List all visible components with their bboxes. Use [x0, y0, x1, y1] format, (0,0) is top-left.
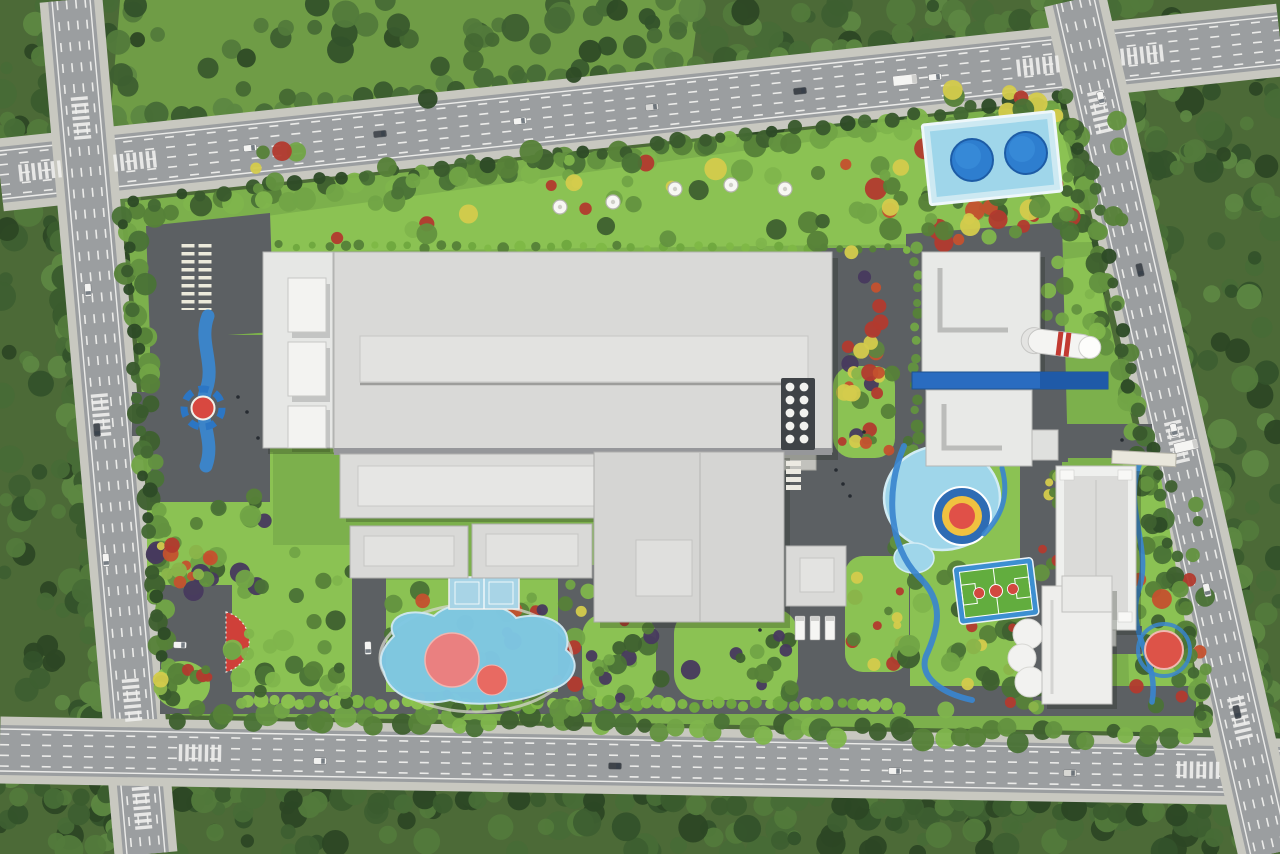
forest-east: [1202, 82, 1221, 101]
forest-west: [28, 371, 54, 397]
building-hedge: [726, 242, 734, 250]
south-hedge: [374, 699, 387, 712]
south-belt: [1007, 731, 1029, 753]
forest-south: [206, 824, 223, 841]
field-edge-trees: [508, 65, 525, 82]
central-garden-trees: [565, 700, 581, 716]
north-belt-dark: [127, 196, 139, 208]
southwest-garden-trees: [315, 573, 331, 589]
north-belt-dark: [934, 109, 946, 121]
forest-east: [1211, 332, 1230, 351]
south-belt: [854, 718, 870, 734]
hall-east-shrubs: [858, 270, 871, 283]
building-hedge: [580, 242, 587, 249]
lower-hall-skylight: [636, 540, 692, 596]
truck-cab: [912, 75, 918, 83]
south-hedge: [303, 695, 315, 707]
north-garden-trees: [368, 195, 383, 210]
building-hedge: [694, 241, 703, 250]
truck-cab: [796, 616, 804, 621]
south-belt: [452, 719, 467, 734]
car: [513, 117, 527, 125]
west-garden-trees: [211, 500, 227, 516]
utility-east-trees: [1085, 289, 1095, 299]
south-hedge: [677, 699, 687, 709]
southwest-garden-trees: [338, 685, 352, 699]
field-edge-trees: [236, 81, 251, 96]
south-belt: [500, 711, 519, 730]
utility-east-trees: [1056, 277, 1074, 295]
west-belt-dark: [133, 343, 145, 355]
west-belt-dark: [125, 303, 139, 317]
forest-west: [130, 32, 145, 47]
east-belt-dark: [1125, 363, 1137, 375]
north-garden-accents: [953, 234, 964, 245]
crosswalks: [1190, 761, 1194, 778]
island-trees: [615, 693, 625, 703]
north-garden-trees: [622, 153, 643, 174]
forest-top-left: [647, 28, 663, 44]
building-hedge: [903, 246, 911, 254]
island-shrubs: [838, 437, 847, 446]
west-belt-dark: [140, 446, 153, 459]
utility-pad-hedge: [911, 420, 924, 433]
utility-pad-hedge: [910, 242, 922, 254]
fareast-garden-trees: [1152, 589, 1172, 609]
southwest-garden-trees: [289, 547, 300, 558]
fareast-garden-trees: [1193, 516, 1203, 526]
east-belt-dark: [1116, 323, 1130, 337]
north-garden-trees: [406, 173, 421, 188]
forest-south: [771, 831, 790, 850]
south-belt: [1076, 732, 1094, 750]
treeline-south-road: [711, 797, 729, 815]
treeline-top-road: [892, 23, 913, 44]
field-edge-trees: [279, 89, 296, 106]
east-garden-accents: [966, 639, 981, 654]
west-belt: [134, 273, 156, 295]
southwest-garden-trees: [244, 629, 254, 639]
southwest-garden-trees: [317, 640, 331, 654]
east-belt-dark: [1111, 301, 1121, 311]
forest-top-right: [791, 3, 810, 22]
island-shrubs: [873, 621, 882, 630]
island-shrubs: [847, 632, 861, 646]
utility-pad-hedge: [911, 406, 919, 414]
building-hedge: [676, 243, 684, 251]
hall-east-shrubs: [842, 340, 854, 352]
forest-east: [1170, 161, 1184, 175]
south-belt: [1139, 725, 1159, 745]
south-belt: [637, 719, 651, 733]
annex-roof-unit: [288, 406, 326, 448]
conveyor-pipe-dark: [1040, 372, 1108, 389]
forest-top-right: [927, 0, 939, 12]
north-belt-dark: [669, 132, 685, 148]
north-garden-trees: [250, 162, 261, 173]
treeline-south-road: [1195, 802, 1211, 818]
forest-top-left: [669, 22, 687, 40]
car: [608, 763, 621, 770]
basin-garden-trees: [943, 80, 963, 100]
north-belt-dark: [216, 186, 231, 201]
fareast-red-circle: [1145, 631, 1183, 669]
west-shrub-island: [193, 569, 204, 580]
west-garden-trees: [190, 517, 203, 530]
south-belt: [1045, 721, 1063, 739]
north-belt-dark: [815, 120, 830, 135]
northeast-pocket-trees: [1063, 130, 1076, 143]
south-hedge: [389, 699, 399, 709]
central-garden-trees: [565, 580, 575, 590]
car-windshield: [365, 649, 371, 653]
car: [173, 642, 186, 649]
south-hedge: [641, 697, 653, 709]
south-belt: [213, 704, 234, 725]
forest-east: [1251, 317, 1272, 338]
west-belt-dark: [123, 284, 134, 295]
southwest-garden-trees: [241, 647, 254, 660]
south-hedge: [838, 698, 848, 708]
west-belt-dark: [136, 405, 149, 418]
east-belt-dark: [1154, 489, 1167, 502]
car-windshield: [896, 768, 900, 773]
basin-garden-trees: [1058, 89, 1073, 104]
west-belt-dark: [121, 265, 133, 277]
car: [928, 73, 942, 81]
north-belt-dark: [766, 126, 778, 138]
silo-tops: [786, 422, 795, 431]
forest-east: [1240, 116, 1254, 130]
north-belt-dark: [981, 98, 996, 113]
forest-east: [1231, 365, 1258, 392]
forest-south: [397, 811, 415, 829]
silo-tops: [786, 435, 795, 444]
forest-top-left: [332, 1, 359, 28]
fareast-garden-trees: [1200, 663, 1212, 675]
storage-tank-top: [1009, 136, 1035, 162]
forest-south: [413, 828, 440, 854]
north-belt: [780, 133, 801, 154]
fareast-garden-trees: [1139, 476, 1155, 492]
north-garden-accents: [840, 159, 851, 170]
south-hedge: [689, 702, 700, 713]
fareast-garden-trees: [1129, 679, 1143, 693]
forest-south: [962, 819, 985, 842]
east-belt-dark: [1172, 551, 1183, 562]
southwest-garden-trees: [230, 667, 250, 687]
car: [102, 553, 109, 566]
forest-south: [678, 813, 708, 843]
north-belt-dark: [597, 148, 608, 159]
field-edge-trees: [579, 40, 602, 63]
forest-west: [23, 651, 43, 671]
forest-west: [55, 695, 70, 710]
east-garden-accents: [961, 678, 974, 691]
southwest-garden-trees: [289, 588, 304, 603]
hall-east-shrubs: [864, 335, 878, 349]
north-garden-trees: [255, 191, 273, 209]
building-hedge: [403, 241, 411, 249]
south-hedge: [319, 700, 328, 709]
forest-east: [1242, 450, 1269, 477]
north-belt-dark: [907, 107, 920, 120]
forest-top-left: [150, 27, 165, 42]
north-belt-dark: [858, 114, 872, 128]
forest-west: [22, 356, 39, 373]
northeast-pocket-trees: [1060, 222, 1079, 241]
building-hedge: [468, 242, 476, 250]
north-garden-accents: [935, 221, 954, 240]
north-belt: [163, 205, 179, 221]
utility-pad-hedge: [913, 283, 922, 292]
car: [84, 283, 91, 296]
annex-roof-unit: [288, 278, 326, 332]
forest-south: [734, 815, 762, 843]
car-windshield: [616, 763, 620, 768]
truck: [893, 74, 918, 86]
forest-top-right: [1249, 82, 1263, 96]
forest-west: [2, 345, 17, 360]
treeline-south-road: [905, 798, 922, 815]
west-shrub-island: [189, 545, 203, 559]
west-garden-trees: [240, 505, 262, 527]
north-belt: [293, 187, 316, 210]
treeline-top-road: [1008, 9, 1032, 33]
north-garden-trees: [449, 167, 469, 187]
car-windshield: [181, 642, 185, 648]
gazebo-top: [558, 205, 562, 209]
treeline-top-road: [473, 68, 494, 89]
east-belt-dark: [1101, 249, 1116, 264]
west-shrub-island: [203, 550, 218, 565]
forest-east: [1248, 251, 1261, 264]
central-garden-trees: [652, 670, 669, 687]
west-belt-dark: [143, 482, 158, 497]
basin-garden-trees: [964, 100, 976, 112]
northeast-pocket-trees: [1062, 172, 1073, 183]
forest-top-left: [278, 20, 294, 36]
forest-east: [1237, 284, 1262, 309]
island-shrubs: [884, 366, 900, 382]
north-garden-trees: [520, 140, 544, 164]
forest-top-left: [501, 14, 529, 42]
west-belt-dark: [145, 565, 159, 579]
south-belt: [1159, 728, 1180, 749]
treeline-south-road: [215, 785, 232, 802]
island-trees: [623, 634, 642, 653]
car: [373, 130, 387, 138]
fareast-garden-trees: [1176, 691, 1188, 703]
small-hall-skylight: [364, 536, 454, 566]
fareast-garden-trees: [1188, 497, 1203, 512]
west-shrub-island: [164, 537, 179, 552]
building-hedge: [643, 245, 650, 252]
car: [365, 641, 372, 654]
forest-south: [612, 812, 641, 841]
island-trees: [754, 664, 773, 683]
island-shrubs: [892, 612, 903, 623]
forest-south: [573, 808, 601, 836]
north-belt: [326, 184, 344, 202]
north-garden-accents: [879, 170, 890, 181]
treeline-south-road: [433, 793, 453, 813]
treeline-south-road: [686, 795, 706, 815]
south-belt: [891, 718, 914, 741]
field-edge-trees: [566, 67, 582, 83]
south-belt: [869, 723, 887, 741]
south-hedge: [281, 694, 296, 709]
building-hedge: [626, 243, 634, 251]
southwest-garden-trees: [304, 661, 323, 680]
north-belt-dark: [287, 175, 303, 191]
utility-pad-hedge: [914, 270, 923, 279]
utility-east-trees: [1071, 304, 1082, 315]
storage-tank-top: [955, 143, 981, 169]
forest-south: [787, 831, 801, 845]
north-belt-dark: [434, 161, 450, 177]
person: [862, 430, 866, 434]
car-windshield: [381, 131, 385, 137]
main-hall-skylight: [360, 336, 808, 382]
forest-top-left: [529, 33, 550, 54]
fareast-garden-trees: [1165, 480, 1178, 493]
treeline-south-road: [1165, 804, 1187, 826]
crosswalks: [205, 745, 209, 762]
building-hedge: [612, 241, 621, 250]
field-edge-trees: [430, 57, 449, 76]
treeline-south-road: [9, 788, 28, 807]
east-belt-dark: [1107, 278, 1118, 289]
forest-top-left: [583, 6, 603, 26]
central-garden-accents: [576, 606, 587, 617]
hall-east-shrubs: [844, 245, 858, 259]
person: [834, 468, 838, 472]
west-shrub-island: [171, 562, 187, 578]
basin-garden-trees: [988, 210, 1007, 229]
utility-attachment: [1032, 430, 1058, 460]
pond-plaza-circle: [477, 665, 507, 695]
gazebo-top: [783, 187, 787, 191]
north-garden-trees: [566, 174, 583, 191]
annex-roof-unit: [288, 342, 326, 396]
central-garden-accents: [415, 593, 430, 608]
crosswalks: [1209, 762, 1213, 779]
south-belt: [169, 713, 186, 730]
north-garden-trees: [272, 141, 292, 161]
dock-bar: [786, 485, 801, 490]
treeline-south-road: [306, 791, 328, 813]
crosswalks: [1203, 762, 1207, 779]
field-edge-trees: [418, 89, 438, 109]
north-garden-trees: [465, 154, 476, 165]
car-windshield: [653, 104, 657, 110]
dorm-wing: [1062, 576, 1112, 612]
north-garden-trees: [416, 223, 437, 244]
southwest-garden-trees: [236, 698, 247, 709]
south-belt: [650, 723, 669, 742]
southwest-garden-trees: [223, 642, 241, 660]
south-belt: [667, 719, 685, 737]
car-windshield: [321, 758, 325, 763]
island-trees: [773, 630, 785, 642]
east-garden-trees: [941, 652, 960, 671]
utility-pad-hedge: [909, 257, 918, 266]
fareast-garden-trees: [1179, 601, 1193, 615]
gazebo-top: [611, 200, 615, 204]
treeline-south-road: [884, 797, 905, 818]
island-trees: [780, 644, 793, 657]
north-garden-accents: [882, 199, 899, 216]
truck-cab: [826, 616, 834, 621]
field-edge-trees: [387, 13, 410, 36]
silo-tops: [800, 383, 809, 392]
gazebo-top: [673, 187, 677, 191]
west-belt-dark: [131, 393, 142, 404]
utility-east-trees: [1055, 313, 1069, 327]
west-shrub-island: [174, 576, 187, 589]
west-shrub-island: [153, 672, 169, 688]
south-hedge: [702, 699, 712, 709]
east-belt: [1153, 545, 1172, 564]
forest-east: [1216, 147, 1231, 162]
west-garden-trees: [235, 570, 254, 589]
south-belt: [911, 729, 934, 752]
square-hall-skylight: [800, 558, 834, 592]
island-trees: [785, 682, 798, 695]
basin-garden-trees: [960, 216, 980, 236]
west-garden-trees: [246, 489, 262, 505]
south-hedge: [713, 697, 725, 709]
central-garden-trees: [526, 593, 537, 604]
north-garden-trees: [331, 232, 343, 244]
west-shrub-island: [173, 674, 184, 685]
treeline-south-road: [1107, 804, 1126, 823]
southwest-garden-trees: [265, 672, 281, 688]
car-windshield: [936, 74, 940, 80]
car-windshield: [801, 88, 805, 94]
northeast-pocket-trees: [1110, 137, 1128, 155]
utility-pad-hedge: [910, 323, 919, 332]
west-belt-dark: [149, 590, 163, 604]
masterplan-rendering: [0, 0, 1280, 854]
forest-top-left: [544, 7, 571, 34]
south-belt: [826, 728, 847, 749]
island-shrubs: [867, 658, 880, 671]
east-belt-dark: [1090, 183, 1102, 195]
north-belt-dark: [885, 113, 900, 128]
basin-garden-trees: [921, 222, 935, 236]
south-belt: [615, 713, 637, 735]
east-belt-dark: [1194, 683, 1210, 699]
building-hedge: [371, 241, 378, 248]
northeast-pocket-trees: [1088, 222, 1106, 240]
south-hedge: [867, 699, 881, 713]
forest-east: [1225, 284, 1238, 297]
north-garden-accents: [893, 159, 910, 176]
southwest-garden-trees: [332, 575, 343, 586]
west-belt-dark: [142, 512, 153, 523]
north-garden-trees: [579, 202, 591, 214]
north-belt-dark: [739, 128, 753, 142]
building-hedge: [326, 242, 335, 251]
west-shrub-island: [201, 665, 210, 674]
fareast-garden-trees: [1141, 514, 1157, 530]
central-garden-trees: [583, 686, 597, 700]
person: [245, 410, 249, 414]
crosswalks: [185, 744, 189, 761]
west-belt-dark: [118, 219, 128, 229]
